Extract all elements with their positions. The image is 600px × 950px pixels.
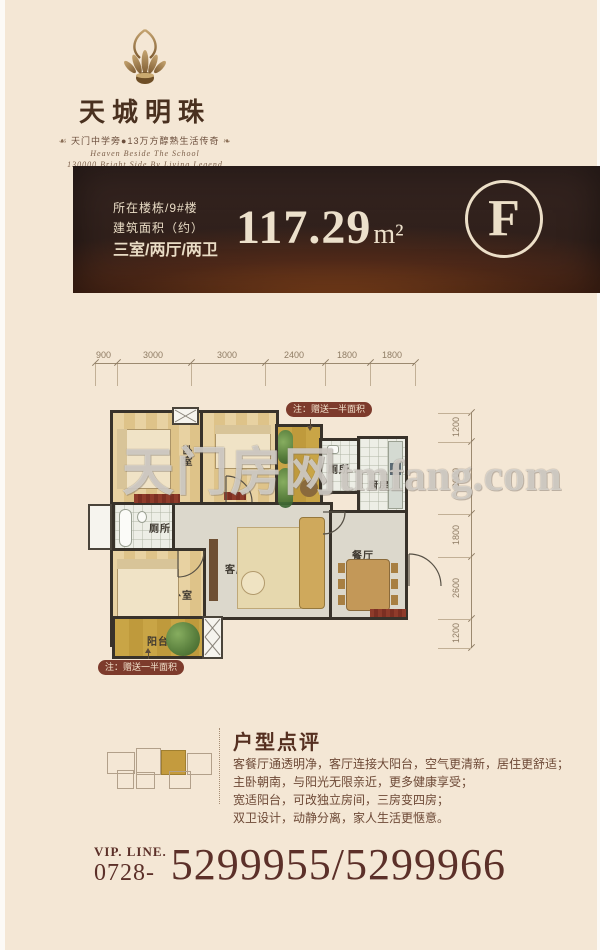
dim-top-900: 900 xyxy=(96,350,111,360)
rug-red-2 xyxy=(224,492,246,500)
plant-study xyxy=(278,430,293,464)
room-balcony-gift: 阳台 xyxy=(112,616,206,659)
shaft-box xyxy=(202,616,223,659)
crown-logo-icon xyxy=(113,28,177,90)
contact-block: VIP. LINE. 0728- 5299955/5299966 xyxy=(0,843,600,887)
dotted-divider xyxy=(219,728,220,804)
dim-right-1200b: 1200 xyxy=(451,623,461,643)
area-unit: m² xyxy=(373,219,403,250)
area-figure: 117.29m² xyxy=(236,200,404,255)
layout-line: 三室/两厅/两卫 xyxy=(113,238,218,264)
ac-ledge xyxy=(88,504,112,550)
building-line: 所在楼栋/9#楼 xyxy=(113,198,218,218)
room-bathroom-left: 厕所 xyxy=(112,502,176,552)
logo-name: 天城明珠 xyxy=(55,92,235,129)
vip-line-block: VIP. LINE. 0728- xyxy=(94,844,167,887)
review-line-1: 客餐厅通透明净，客厅连接大阳台，空气更清新，居住更舒适； xyxy=(233,755,569,773)
closet-box xyxy=(172,407,199,425)
script-line-1: Heaven Beside The School xyxy=(55,149,235,158)
rug-red-doormat xyxy=(370,609,406,617)
dim-top-1800b: 1800 xyxy=(382,350,402,360)
flourish-right-icon: ❧ xyxy=(223,136,232,146)
review-lines: 客餐厅通透明净，客厅连接大阳台，空气更清新，居住更舒适； 主卧朝南，与阳光无限亲… xyxy=(233,755,569,827)
dim-right-2600: 2600 xyxy=(451,578,461,598)
area-code: 0728- xyxy=(94,860,167,887)
dim-right-1800: 1800 xyxy=(451,525,461,545)
review-line-2: 主卧朝南，与阳光无限亲近，更多健康享受； xyxy=(233,773,569,791)
poster-page: 天城明珠 ☙ 天门中学旁●13万方醇熟生活传奇 ❧ Heaven Beside … xyxy=(0,0,600,950)
room-kitchen: 厨房 xyxy=(357,436,408,514)
tagline: ☙ 天门中学旁●13万方醇熟生活传奇 ❧ xyxy=(55,134,235,147)
rug-red-1 xyxy=(134,494,180,503)
unit-type-letter: F xyxy=(488,193,520,245)
vip-line-label: VIP. LINE. xyxy=(94,844,167,860)
dim-top-1800a: 1800 xyxy=(337,350,357,360)
phone-numbers: 5299955/5299966 xyxy=(171,843,506,887)
gift-note-bottom: 注：赠送一半面积 xyxy=(98,660,184,675)
dim-right-3000: 3000 xyxy=(451,468,461,488)
keyplan-diagram xyxy=(103,744,213,792)
logo-block: 天城明珠 ☙ 天门中学旁●13万方醇熟生活传奇 ❧ Heaven Beside … xyxy=(55,28,235,183)
unit-type-badge: F xyxy=(465,180,543,258)
dim-top-2400: 2400 xyxy=(284,350,304,360)
unit-info-lines: 所在楼栋/9#楼 建筑面积（约） 三室/两厅/两卫 xyxy=(113,198,218,264)
review-line-3: 宽适阳台，可改独立房间，三房变四房； xyxy=(233,791,569,809)
gift-arrow-down-icon xyxy=(307,426,313,431)
review-title: 户型点评 xyxy=(233,726,321,755)
area-value: 117.29 xyxy=(236,201,371,254)
unit-info-banner: 所在楼栋/9#楼 建筑面积（约） 三室/两厅/两卫 117.29m² F xyxy=(73,166,600,293)
left-white-edge xyxy=(0,0,5,950)
room-dining: 餐厅 xyxy=(329,510,408,620)
gift-note-top: 注：赠送一半面积 xyxy=(286,402,372,417)
review-line-4: 双卫设计，动静分离，家人生活更惬意。 xyxy=(233,809,569,827)
dim-top-3000a: 3000 xyxy=(143,350,163,360)
room-bathroom-top: 厕所 xyxy=(319,438,361,494)
dim-top-3000b: 3000 xyxy=(217,350,237,360)
area-label-line: 建筑面积（约） xyxy=(113,218,218,238)
dim-right-1200a: 1200 xyxy=(451,417,461,437)
flourish-left-icon: ☙ xyxy=(58,136,67,146)
plant-study-2 xyxy=(278,468,293,508)
